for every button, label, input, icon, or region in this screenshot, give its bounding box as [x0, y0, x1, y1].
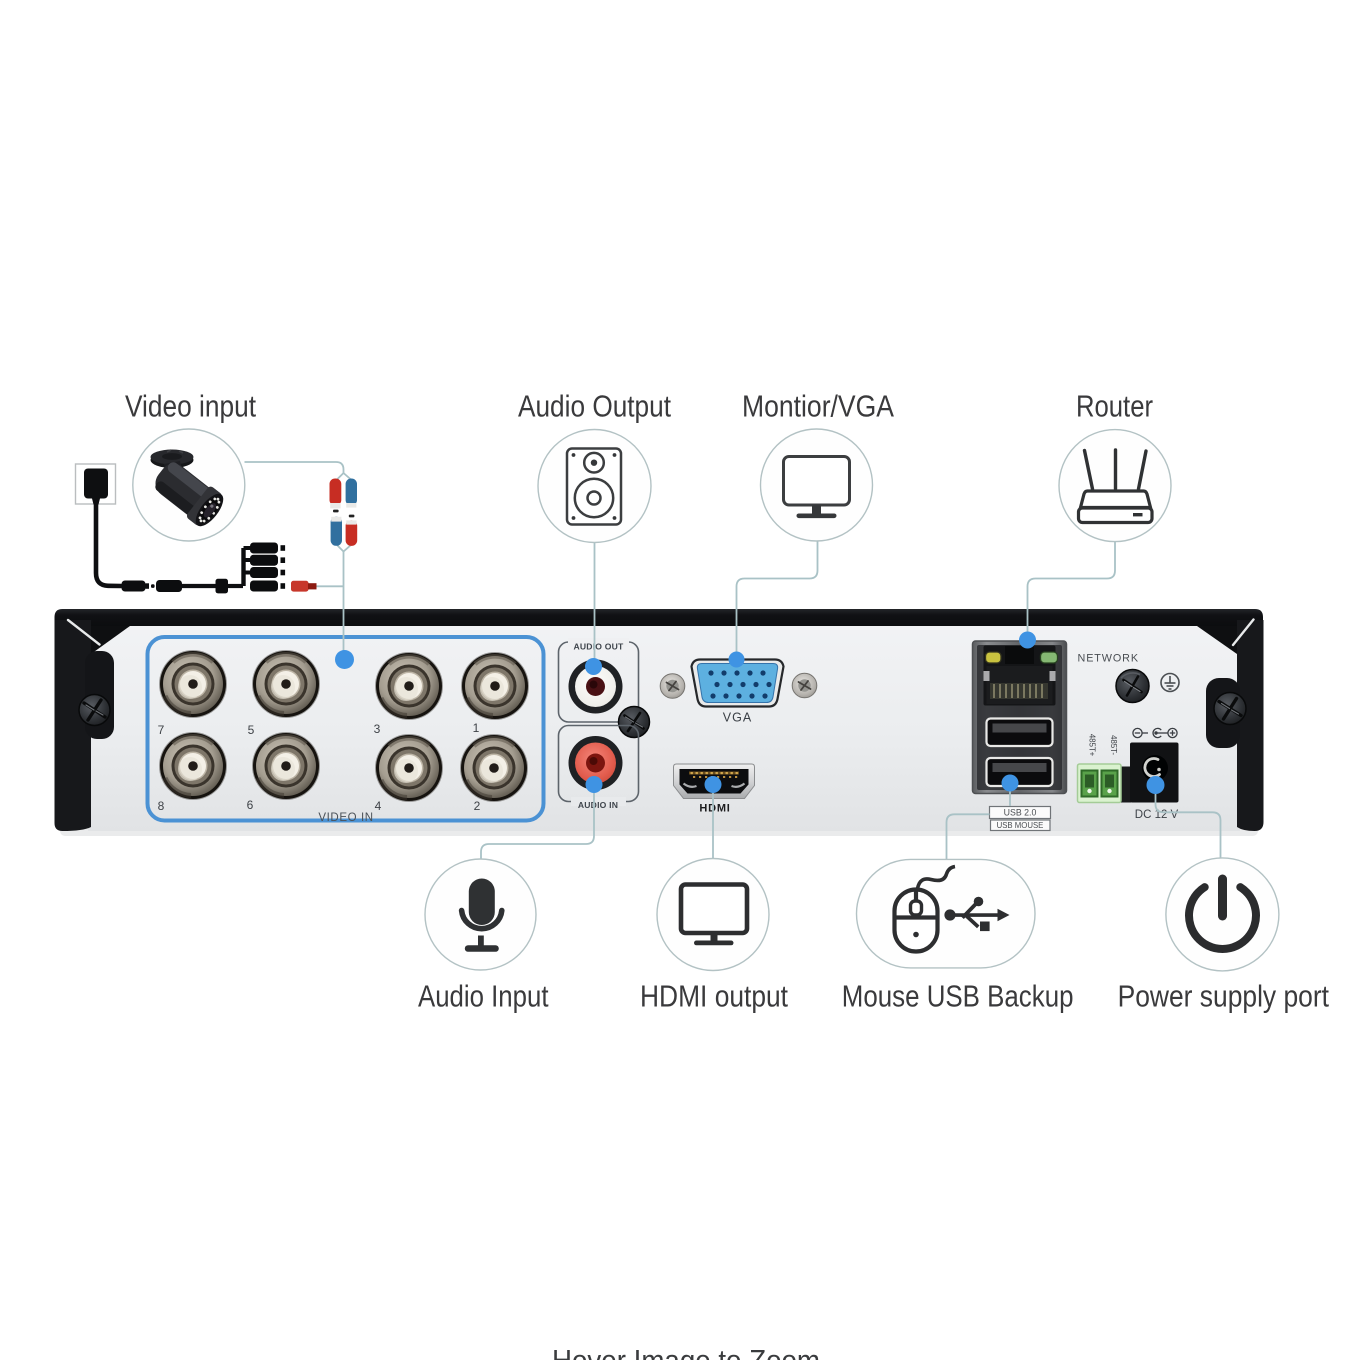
- svg-text:6: 6: [247, 798, 254, 812]
- svg-text:2: 2: [474, 799, 481, 813]
- svg-text:NETWORK: NETWORK: [1078, 653, 1139, 665]
- svg-text:8: 8: [158, 799, 165, 813]
- svg-text:USB MOUSE: USB MOUSE: [997, 821, 1044, 830]
- svg-text:3: 3: [374, 722, 381, 736]
- svg-text:Video input: Video input: [125, 389, 256, 424]
- svg-text:7: 7: [158, 723, 165, 737]
- svg-text:VIDEO IN: VIDEO IN: [318, 812, 373, 824]
- svg-text:5: 5: [248, 723, 255, 737]
- svg-text:USB 2.0: USB 2.0: [1004, 808, 1037, 818]
- svg-text:485T+: 485T+: [1088, 734, 1097, 757]
- svg-text:VGA: VGA: [723, 711, 752, 725]
- svg-text:1: 1: [473, 721, 480, 735]
- svg-text:HDMI output: HDMI output: [640, 979, 788, 1014]
- svg-text:Audio Output: Audio Output: [518, 389, 671, 424]
- svg-text:AUDIO OUT: AUDIO OUT: [573, 641, 624, 651]
- svg-text:Hover Image to Zoom: Hover Image to Zoom: [552, 1345, 820, 1360]
- svg-text:Power supply port: Power supply port: [1118, 979, 1330, 1014]
- svg-text:Router: Router: [1076, 389, 1153, 424]
- svg-text:Audio Input: Audio Input: [418, 979, 549, 1014]
- svg-text:485T-: 485T-: [1109, 735, 1118, 755]
- svg-text:4: 4: [375, 799, 382, 813]
- svg-text:Montior/VGA: Montior/VGA: [742, 389, 894, 424]
- svg-text:AUDIO IN: AUDIO IN: [578, 800, 618, 810]
- svg-text:HDMI: HDMI: [699, 803, 730, 815]
- svg-text:Mouse USB Backup: Mouse USB Backup: [842, 979, 1074, 1014]
